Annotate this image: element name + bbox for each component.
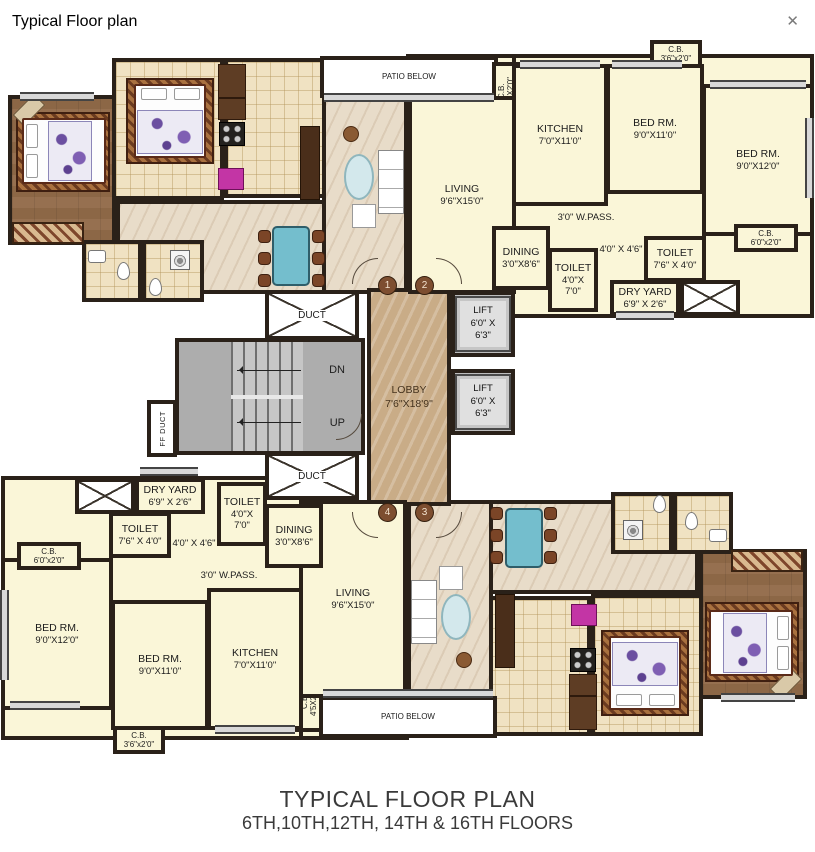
stove-a <box>219 122 245 146</box>
room-label: BED RM. <box>736 148 780 161</box>
chair <box>544 507 557 520</box>
room-toilet2-a: TOILET 7'6" X 4'0" <box>644 236 706 282</box>
window <box>616 311 674 320</box>
cb-label: C.B. <box>41 547 57 556</box>
window <box>710 80 806 89</box>
lift-dim: 6'0" X 6'3" <box>463 318 503 343</box>
room-bed2-b: BED RM. 9'0"X12'0" <box>1 558 113 710</box>
chair <box>258 230 271 243</box>
blanket <box>723 613 767 673</box>
cb-side-b: C.B. 6'0"x2'0" <box>17 542 81 570</box>
bed-b2 <box>609 636 681 710</box>
room-dining-b: DINING 3'0"X8'6" <box>265 504 323 568</box>
room-label: LIVING <box>336 587 370 600</box>
room-dim: 9'0"X12'0" <box>35 635 78 646</box>
stair-arrow-icon <box>237 422 301 423</box>
stair-landing-divider <box>231 395 303 399</box>
room-dim: 6'9" X 2'6" <box>148 497 191 508</box>
wardrobe-magenta-b <box>571 604 597 626</box>
stove-b <box>570 648 596 672</box>
toilet-room-b1 <box>673 492 733 554</box>
wardrobe-b <box>731 550 803 572</box>
room-label: DINING <box>276 524 313 537</box>
page-title: Typical Floor plan <box>12 13 137 31</box>
coffee-table-b <box>441 594 471 640</box>
pillow <box>141 88 167 100</box>
room-dim: 9'0"X11'0" <box>634 130 676 141</box>
room-dim: 4'0"X <box>231 509 253 520</box>
wardrobe-a <box>12 222 84 244</box>
dining-table-b <box>505 508 543 568</box>
chair <box>258 274 271 287</box>
pass-b: 4'0" X 4'6" <box>169 524 219 564</box>
cb-dim: 6'0"x2'0" <box>34 556 65 565</box>
ff-duct: FF DUCT <box>147 400 177 457</box>
duct-top: DUCT <box>265 290 359 340</box>
room-dim: 7'6" X 4'0" <box>653 260 696 271</box>
blanket <box>612 642 678 686</box>
lift-dim: 6'0" X 6'3" <box>463 396 503 421</box>
stairs-down-label: DN <box>329 364 345 376</box>
room-label: DINING <box>503 246 540 259</box>
tv-unit-b <box>495 594 515 668</box>
washbasin-b <box>709 529 727 542</box>
patio-label: PATIO BELOW <box>382 72 436 81</box>
window <box>805 118 814 198</box>
room-dim: 7'0" <box>234 520 250 531</box>
wardrobe-magenta-a <box>218 168 244 190</box>
pass-a: 4'0" X 4'6" <box>596 230 646 270</box>
pillow <box>26 124 38 148</box>
side-table-b <box>439 566 463 590</box>
toilet-wc-a2 <box>149 278 162 296</box>
bed-a1 <box>22 118 106 184</box>
cb-dim: 3'6"x2'0" <box>124 740 155 749</box>
pillow <box>26 154 38 178</box>
room-label: TOILET <box>224 496 261 509</box>
lobby: LOBBY 7'6"X18'9" <box>367 288 451 506</box>
close-icon[interactable]: ✕ <box>786 12 799 30</box>
chair <box>490 551 503 564</box>
dining-table-a <box>272 226 310 286</box>
room-kitchen-b: KITCHEN 7'0"X11'0" <box>207 588 303 730</box>
window <box>0 590 9 680</box>
toilet-wc-a1 <box>117 262 130 280</box>
room-dryyard-b: DRY YARD 6'9" X 2'6" <box>135 478 205 514</box>
room-dim: 7'6" X 4'0" <box>118 536 161 547</box>
bed-a2 <box>134 84 206 158</box>
pillow <box>649 694 675 706</box>
room-toilet2-b: TOILET 7'6" X 4'0" <box>109 512 171 558</box>
cb-side-a: C.B. 6'0"x2'0" <box>734 224 798 252</box>
room-dim: 9'6"X15'0" <box>440 196 483 207</box>
duct-top-label: DUCT <box>295 310 329 321</box>
lift-label: LIFT <box>463 383 503 395</box>
washing-machine-a <box>170 250 190 270</box>
duct-bottom: DUCT <box>265 452 359 500</box>
room-label: TOILET <box>555 262 592 275</box>
wpass-label: 3'0" W.PASS. <box>558 212 615 223</box>
washbasin-a <box>88 250 106 263</box>
room-label: BED RM. <box>35 622 79 635</box>
side-table-a <box>352 204 376 228</box>
room-label: BED RM. <box>633 117 677 130</box>
washing-machine-b <box>623 520 643 540</box>
room-dim: 6'9" X 2'6" <box>623 299 666 310</box>
cb-label: C.B. <box>758 229 774 238</box>
chair <box>312 274 325 287</box>
room-label: TOILET <box>657 247 694 260</box>
blanket <box>48 121 92 181</box>
room-dining-a: DINING 3'0"X8'6" <box>492 226 550 290</box>
cb-dim: 6'0"x2'0" <box>751 238 782 247</box>
plan-subtitle: 6TH,10TH,12TH, 14TH & 16TH FLOORS <box>0 813 815 834</box>
chair <box>312 230 325 243</box>
lift-2: LIFT 6'0" X 6'3" <box>451 369 515 435</box>
window <box>323 689 493 698</box>
coffee-table-a <box>344 154 374 200</box>
door-tag-1: 1 <box>378 276 397 295</box>
room-dim: 9'0"X12'0" <box>736 161 779 172</box>
window <box>10 701 80 710</box>
lift-label: LIFT <box>463 305 503 317</box>
duct-a <box>680 280 740 316</box>
chair <box>312 252 325 265</box>
pillow <box>777 616 789 640</box>
room-toilet1-a: TOILET 4'0"X 7'0" <box>548 248 598 312</box>
duct-b <box>75 478 135 514</box>
stool-a <box>343 126 359 142</box>
sofa-b <box>411 580 437 644</box>
kitchen-counter-b <box>569 674 597 696</box>
room-label: KITCHEN <box>537 123 583 136</box>
lobby-dim: 7'6"X18'9" <box>385 397 433 411</box>
kitchen-counter-a <box>218 98 246 120</box>
chair <box>258 252 271 265</box>
plan-title: TYPICAL FLOOR PLAN <box>0 786 815 813</box>
room-label: DRY YARD <box>619 286 672 299</box>
pass-label: 4'0" X 4'6" <box>172 538 215 549</box>
floor-plan-viewer: Typical Floor plan ✕ <box>0 0 815 852</box>
room-label: LIVING <box>445 183 479 196</box>
chair <box>490 507 503 520</box>
patio-label: PATIO BELOW <box>381 712 435 721</box>
room-dim: 9'6"X15'0" <box>331 600 374 611</box>
room-kitchen-a: KITCHEN 7'0"X11'0" <box>512 64 608 206</box>
room-label: BED RM. <box>138 653 182 666</box>
cb-corner-b: C.B. 3'6"x2'0" <box>113 726 165 754</box>
door-tag-3: 3 <box>415 503 434 522</box>
patio-b: PATIO BELOW <box>319 696 497 738</box>
lift-1: LIFT 6'0" X 6'3" <box>451 291 515 357</box>
patio-a: PATIO BELOW <box>320 56 498 98</box>
room-dim: 3'0"X8'6" <box>275 537 313 548</box>
chair <box>490 529 503 542</box>
stair-arrow-icon <box>237 370 301 371</box>
toilet-wc-b1 <box>685 512 698 530</box>
chair <box>544 551 557 564</box>
room-dim: 3'0"X8'6" <box>502 259 540 270</box>
room-dim: 9'0"X11'0" <box>139 666 181 677</box>
room-bed1-a: BED RM. 9'0"X11'0" <box>606 64 704 194</box>
kitchen-cabinet-a <box>218 64 246 98</box>
room-label: TOILET <box>122 523 159 536</box>
window <box>721 693 795 702</box>
sofa-a <box>378 150 404 214</box>
window <box>140 467 198 476</box>
cb-label: C.B. <box>131 731 147 740</box>
room-label: KITCHEN <box>232 647 278 660</box>
window <box>612 60 682 69</box>
window <box>20 92 94 101</box>
room-dim: 7'0"X11'0" <box>234 660 276 671</box>
door-tag-4: 4 <box>378 503 397 522</box>
duct-bottom-label: DUCT <box>295 471 329 482</box>
pillow <box>777 646 789 670</box>
ff-duct-label: FF DUCT <box>158 411 167 447</box>
window <box>215 725 295 734</box>
chair <box>544 529 557 542</box>
window <box>520 60 600 69</box>
stool-b <box>456 652 472 668</box>
room-dim: 7'0" <box>565 286 581 297</box>
room-dim: 4'0"X <box>562 275 584 286</box>
pillow <box>616 694 642 706</box>
room-bed1-b: BED RM. 9'0"X11'0" <box>111 600 209 730</box>
room-label: DRY YARD <box>144 484 197 497</box>
lobby-label: LOBBY <box>385 383 433 397</box>
cb-label: C.B. <box>668 45 684 54</box>
window <box>324 93 494 102</box>
pass-label: 4'0" X 4'6" <box>599 244 642 255</box>
toilet-wc-b2 <box>653 495 666 513</box>
door-tag-2: 2 <box>415 276 434 295</box>
room-dim: 7'0"X11'0" <box>539 136 581 147</box>
bed-b1 <box>709 610 793 676</box>
pillow <box>174 88 200 100</box>
tv-unit-a <box>300 126 320 200</box>
room-toilet1-b: TOILET 4'0"X 7'0" <box>217 482 267 546</box>
blanket <box>137 110 203 154</box>
kitchen-cabinet-b <box>569 696 597 730</box>
room-bed2-a: BED RM. 9'0"X12'0" <box>702 84 814 236</box>
wpass-label: 3'0" W.PASS. <box>201 570 258 581</box>
